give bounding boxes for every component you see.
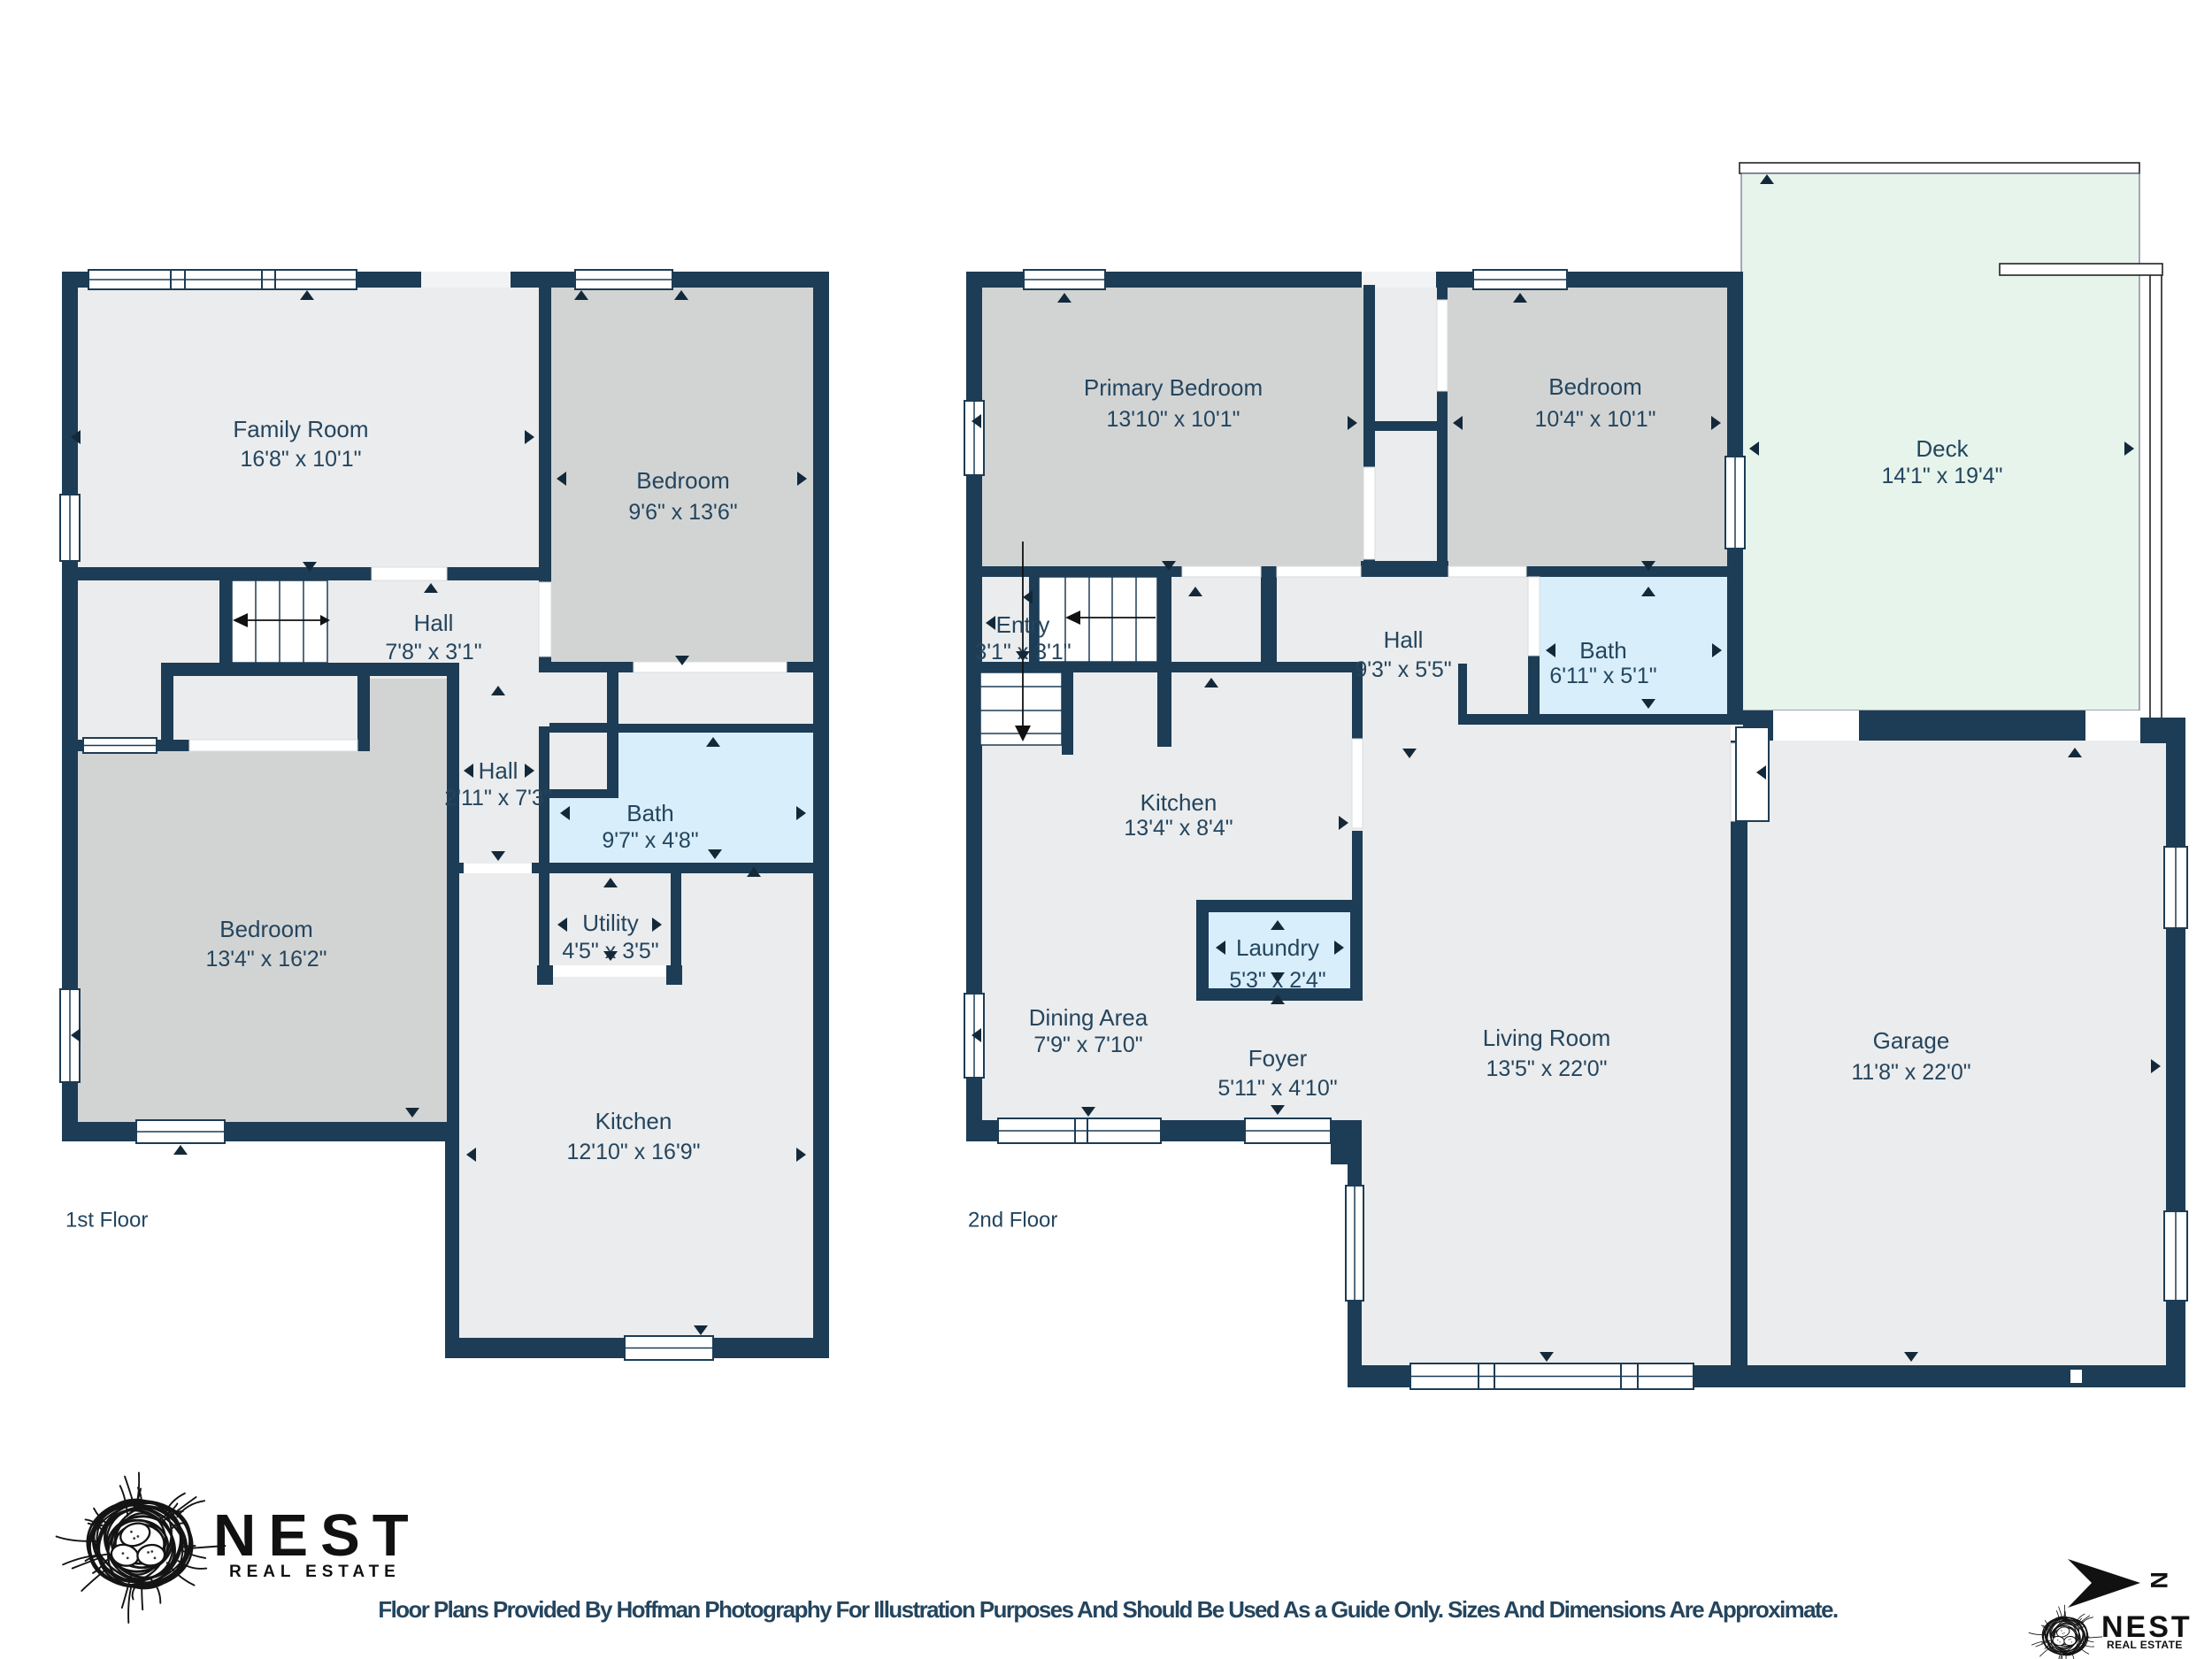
- svg-text:13'4" x 8'4": 13'4" x 8'4": [1124, 816, 1233, 841]
- svg-text:12'10" x 16'9": 12'10" x 16'9": [566, 1140, 700, 1164]
- svg-text:13'5" x 22'0": 13'5" x 22'0": [1486, 1056, 1607, 1081]
- svg-text:Foyer: Foyer: [1248, 1045, 1308, 1071]
- svg-text:2'11" x 7'3": 2'11" x 7'3": [444, 786, 551, 810]
- svg-text:Bath: Bath: [626, 800, 674, 826]
- svg-text:Kitchen: Kitchen: [1141, 789, 1217, 816]
- svg-text:Entry: Entry: [996, 611, 1050, 638]
- svg-text:10'4" x 10'1": 10'4" x 10'1": [1534, 407, 1655, 432]
- svg-text:Bath: Bath: [1579, 637, 1627, 664]
- svg-text:11'8" x 22'0": 11'8" x 22'0": [1851, 1060, 1970, 1085]
- svg-text:7'9" x 7'10": 7'9" x 7'10": [1033, 1033, 1142, 1057]
- svg-text:Living Room: Living Room: [1483, 1025, 1611, 1051]
- svg-text:Hall: Hall: [1384, 626, 1424, 653]
- svg-text:Hall: Hall: [414, 610, 454, 636]
- svg-text:Family Room: Family Room: [233, 416, 368, 442]
- svg-text:Primary Bedroom: Primary Bedroom: [1084, 374, 1263, 401]
- svg-text:13'4" x 16'2": 13'4" x 16'2": [205, 947, 326, 972]
- svg-text:9'6" x 13'6": 9'6" x 13'6": [628, 500, 737, 525]
- svg-text:Bedroom: Bedroom: [219, 916, 313, 942]
- svg-text:REAL ESTATE: REAL ESTATE: [229, 1563, 401, 1581]
- svg-text:Laundry: Laundry: [1236, 934, 1319, 961]
- svg-text:Utility: Utility: [582, 910, 639, 936]
- svg-text:7'8" x 3'1": 7'8" x 3'1": [385, 640, 481, 664]
- svg-text:Bedroom: Bedroom: [636, 467, 730, 494]
- svg-text:9'3" x 5'5": 9'3" x 5'5": [1355, 657, 1451, 682]
- svg-text:6'11" x 5'1": 6'11" x 5'1": [1549, 664, 1656, 688]
- svg-text:Floor Plans Provided By Hoffma: Floor Plans Provided By Hoffman Photogra…: [378, 1598, 1838, 1623]
- svg-text:Deck: Deck: [1916, 435, 1969, 462]
- svg-text:14'1" x 19'4": 14'1" x 19'4": [1881, 464, 2002, 488]
- svg-text:Kitchen: Kitchen: [595, 1108, 672, 1134]
- svg-text:NEST: NEST: [213, 1502, 421, 1569]
- svg-text:REAL ESTATE: REAL ESTATE: [2107, 1639, 2183, 1651]
- svg-text:9'7" x 4'8": 9'7" x 4'8": [602, 828, 698, 853]
- svg-text:Bedroom: Bedroom: [1548, 373, 1642, 400]
- svg-text:N: N: [2146, 1571, 2172, 1589]
- svg-text:Garage: Garage: [1873, 1027, 1950, 1054]
- svg-text:Hall: Hall: [479, 757, 518, 784]
- svg-text:5'11" x 4'10": 5'11" x 4'10": [1217, 1076, 1337, 1101]
- svg-text:16'8" x 10'1": 16'8" x 10'1": [240, 447, 361, 472]
- svg-text:13'10" x 10'1": 13'10" x 10'1": [1106, 407, 1240, 432]
- svg-text:2nd Floor: 2nd Floor: [968, 1209, 1057, 1233]
- svg-text:1st Floor: 1st Floor: [65, 1209, 148, 1233]
- svg-text:Dining Area: Dining Area: [1029, 1004, 1148, 1031]
